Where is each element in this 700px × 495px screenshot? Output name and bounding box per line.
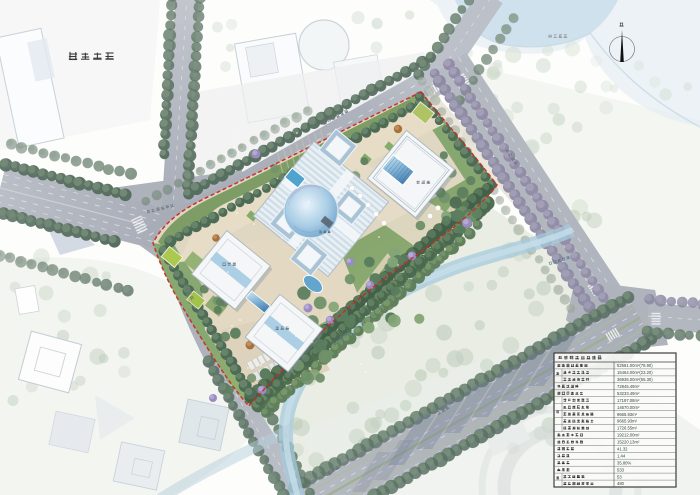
svg-text:19212.00m²: 19212.00m² — [617, 433, 640, 438]
svg-text:15464.00m²(23.20): 15464.00m²(23.20) — [617, 370, 653, 375]
svg-text:53233.49m²: 53233.49m² — [617, 391, 640, 396]
svg-text:72845.49m²: 72845.49m² — [617, 384, 640, 389]
svg-text:1.44: 1.44 — [617, 453, 626, 458]
svg-text:1726.55m²: 1726.55m² — [617, 426, 638, 431]
svg-text:9665.93m²: 9665.93m² — [617, 412, 638, 417]
svg-text:52581.00m²(78.90): 52581.00m²(78.90) — [617, 363, 653, 368]
svg-text:41.32: 41.32 — [617, 447, 628, 452]
svg-text:17197.08m²: 17197.08m² — [617, 398, 640, 403]
svg-text:9665.93m²: 9665.93m² — [617, 419, 638, 424]
svg-text:533: 533 — [617, 467, 625, 472]
svg-text:53: 53 — [617, 474, 622, 479]
svg-text:35.80%: 35.80% — [617, 460, 631, 465]
svg-text:15220.13m²: 15220.13m² — [617, 440, 640, 445]
svg-text:14670.00m²: 14670.00m² — [617, 405, 640, 410]
svg-text:36936.00m²(55.30): 36936.00m²(55.30) — [617, 377, 653, 382]
svg-text:480: 480 — [617, 481, 625, 486]
